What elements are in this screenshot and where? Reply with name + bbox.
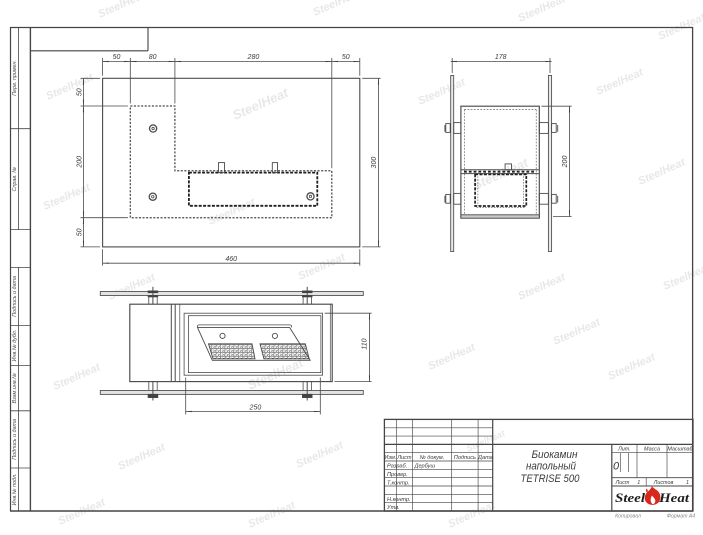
svg-text:300: 300 (371, 157, 378, 169)
svg-text:1: 1 (637, 480, 640, 486)
svg-text:0: 0 (613, 461, 620, 473)
svg-text:SteelHeat: SteelHeat (551, 316, 603, 348)
svg-text:280: 280 (247, 54, 260, 61)
svg-text:SteelHeat: SteelHeat (206, 196, 258, 228)
svg-text:SteelHeat: SteelHeat (44, 71, 96, 103)
svg-text:SteelHeat: SteelHeat (516, 0, 568, 25)
svg-text:1: 1 (686, 480, 689, 486)
svg-text:50: 50 (342, 54, 350, 61)
svg-text:SteelHeat: SteelHeat (296, 251, 348, 283)
svg-text:Лит.: Лит. (617, 447, 631, 453)
svg-text:Масса: Масса (644, 447, 660, 453)
svg-text:напольный: напольный (526, 461, 576, 473)
svg-text:50: 50 (76, 228, 83, 236)
svg-text:110: 110 (361, 338, 368, 349)
svg-text:SteelHeat: SteelHeat (636, 156, 688, 188)
svg-text:SteelHeat: SteelHeat (116, 441, 168, 473)
svg-text:SteelHeat: SteelHeat (106, 271, 158, 303)
svg-text:Утв.: Утв. (386, 505, 400, 511)
svg-text:Лист: Лист (615, 480, 630, 486)
svg-text:Перв. примен.: Перв. примен. (12, 60, 18, 96)
svg-text:TETRISE 500: TETRISE 500 (521, 473, 581, 485)
svg-text:SteelHeat: SteelHeat (294, 439, 346, 471)
svg-text:Листов: Листов (653, 480, 674, 486)
svg-text:Инв.№ дубл.: Инв.№ дубл. (12, 330, 18, 362)
svg-text:Изм.: Изм. (384, 455, 396, 461)
svg-text:Разраб.: Разраб. (387, 464, 407, 470)
svg-text:Взам.инв.№: Взам.инв.№ (12, 373, 18, 404)
svg-text:Лист: Лист (396, 455, 412, 461)
svg-text:Масштаб: Масштаб (667, 447, 693, 453)
svg-text:Справ. №: Справ. № (12, 167, 18, 192)
svg-text:Подпись: Подпись (454, 455, 476, 461)
svg-text:200: 200 (76, 156, 83, 169)
svg-text:SteelHeat: SteelHeat (465, 428, 507, 454)
svg-text:SteelHeat: SteelHeat (594, 66, 646, 98)
svg-text:SteelHeat: SteelHeat (516, 271, 568, 303)
svg-text:Н.контр.: Н.контр. (387, 497, 411, 503)
svg-text:SteelHeat: SteelHeat (426, 341, 478, 373)
svg-text:SteelHeat: SteelHeat (311, 0, 363, 19)
svg-text:50: 50 (113, 54, 121, 61)
svg-text:Копировал: Копировал (615, 514, 641, 520)
svg-text:SteelHeat: SteelHeat (96, 0, 148, 21)
svg-text:SteelHeat: SteelHeat (56, 496, 108, 528)
svg-text:SteelHeat: SteelHeat (446, 499, 498, 531)
svg-text:Инв.№ подл.: Инв.№ подл. (12, 473, 18, 505)
svg-text:Провер.: Провер. (387, 472, 408, 478)
svg-text:Подпись и дата: Подпись и дата (12, 419, 18, 460)
svg-text:SteelHeat: SteelHeat (230, 85, 291, 123)
svg-text:Подпись и дата: Подпись и дата (12, 276, 18, 317)
svg-text:SteelHeat: SteelHeat (661, 261, 703, 293)
svg-text:№ докум.: № докум. (420, 455, 445, 461)
svg-text:SteelHeat: SteelHeat (416, 76, 468, 108)
svg-text:Steel: Steel (615, 490, 645, 505)
svg-text:SteelHeat: SteelHeat (606, 351, 658, 383)
svg-text:SteelHeat: SteelHeat (41, 181, 93, 213)
svg-text:Дербуш: Дербуш (414, 464, 436, 470)
svg-text:50: 50 (76, 88, 83, 96)
svg-text:SteelHeat: SteelHeat (246, 499, 298, 531)
svg-text:200: 200 (562, 156, 569, 169)
svg-text:80: 80 (149, 54, 157, 61)
svg-text:Формат А4: Формат А4 (667, 514, 695, 520)
svg-text:Т.контр.: Т.контр. (387, 480, 410, 486)
svg-text:178: 178 (495, 54, 507, 61)
svg-text:460: 460 (225, 256, 237, 263)
svg-text:Биокамин: Биокамин (532, 449, 578, 461)
svg-text:SteelHeat: SteelHeat (51, 361, 103, 393)
svg-text:250: 250 (249, 404, 262, 411)
svg-text:Дата: Дата (477, 455, 493, 461)
svg-text:Heat: Heat (658, 490, 690, 505)
svg-text:SteelHeat: SteelHeat (656, 11, 703, 43)
